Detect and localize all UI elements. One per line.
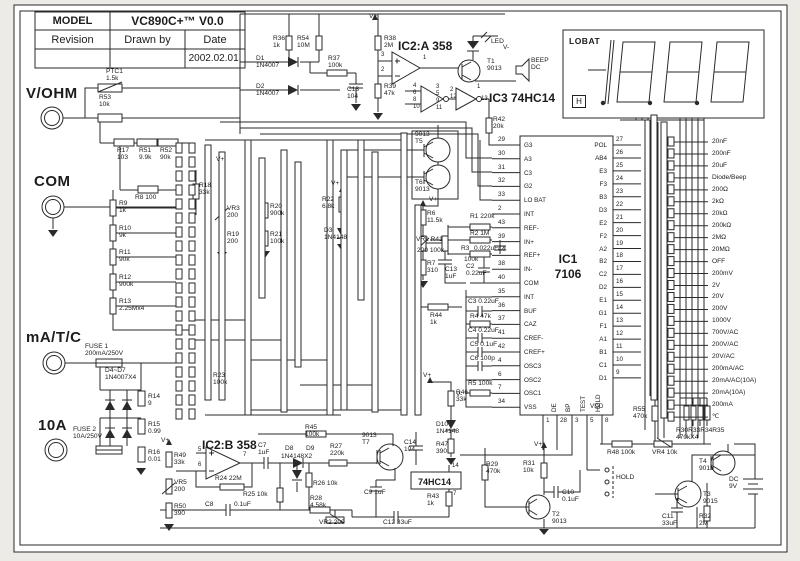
label-r13-14: R13 2.25Mx4 bbox=[119, 298, 144, 312]
ic1-pin-num-41: 41 bbox=[498, 329, 505, 336]
ic1-pin-in-l9: IN- bbox=[524, 266, 532, 273]
ic1-pin-num-24: 24 bbox=[616, 175, 623, 182]
label-r36-35: R36 1k bbox=[273, 35, 285, 49]
label-2-46: 2 bbox=[381, 67, 384, 74]
label-1-47: 1 bbox=[423, 55, 426, 62]
range-2v-12: 2V bbox=[712, 282, 720, 289]
label-r25-99: R25 10k bbox=[243, 491, 268, 498]
label-200-64: 200 100k bbox=[417, 247, 444, 254]
switch-wafer-bar bbox=[651, 115, 657, 400]
switch-wafer-bar bbox=[401, 133, 407, 415]
label-r28-100: R28 4.58k bbox=[310, 495, 326, 509]
label-r10-11: R10 9k bbox=[119, 225, 131, 239]
label-t6-60: T6 9013 bbox=[415, 179, 430, 193]
label-c8-101: C8 bbox=[205, 501, 213, 508]
range-pad bbox=[668, 388, 674, 397]
ic1-pin-osc2-l17: OSC2 bbox=[524, 377, 541, 384]
range-200vac-17: 200V/AC bbox=[712, 341, 738, 348]
range-pad bbox=[668, 149, 674, 158]
ic1-pin-d3-r5: D3 bbox=[567, 207, 607, 214]
ic1-pin-num-11: 11 bbox=[616, 343, 623, 350]
switch-pad bbox=[189, 143, 195, 153]
ic1-pin-num-2: 2 bbox=[498, 205, 502, 212]
label-100k-71: 100k bbox=[464, 256, 478, 263]
ic1-pin-d1-r18: D1 bbox=[567, 375, 607, 382]
label-r31-112: R31 10k bbox=[523, 460, 535, 474]
label-dc-122: DC 9V bbox=[729, 476, 739, 490]
label-74hc14-106: 74HC14 bbox=[418, 477, 451, 487]
ic1-pin-num-40: 40 bbox=[498, 274, 505, 281]
switch-pad bbox=[176, 353, 182, 363]
label-com-1: COM bbox=[34, 174, 71, 189]
range-pad bbox=[668, 400, 674, 409]
label-r1-67: R1 220k bbox=[470, 213, 495, 220]
switch-pad bbox=[176, 395, 182, 405]
label-r54-36: R54 10M bbox=[297, 35, 310, 49]
label-vr5-23: VR5 200 bbox=[174, 479, 187, 493]
switch-pad bbox=[176, 311, 182, 321]
model-label: MODEL bbox=[35, 12, 110, 30]
label-c13-66: C13 1uF bbox=[445, 266, 457, 280]
label-r2-68: R2 1M bbox=[470, 230, 489, 237]
ic1-pin-vdd-b4: VDD bbox=[590, 403, 603, 410]
switch-pad bbox=[189, 339, 195, 349]
ic1-pin-num-21: 21 bbox=[616, 214, 623, 221]
switch-pad bbox=[176, 409, 182, 419]
label-beep-51: BEEP DC bbox=[531, 57, 549, 71]
ic1-pin-f2-r7: F2 bbox=[567, 233, 607, 240]
switch-pad bbox=[176, 325, 182, 335]
label-vr2-103: VR2 200 bbox=[319, 519, 345, 526]
switch-pad bbox=[189, 157, 195, 167]
model-value: VC890C+™ V0.0 bbox=[110, 12, 245, 30]
ic1-pin-num-20: 20 bbox=[616, 227, 623, 234]
label-ic3-52: IC3 74HC14 bbox=[489, 92, 555, 104]
label-d2-38: D2 1N4007 bbox=[256, 83, 279, 97]
ic1-pin-num-32: 32 bbox=[498, 177, 505, 184]
ic1-pin-a3-l1: A3 bbox=[524, 156, 532, 163]
label-2-55: 2 12 bbox=[450, 87, 457, 101]
range-200nf-1: 200nF bbox=[712, 150, 731, 157]
ic1-pin-num-15: 15 bbox=[616, 291, 623, 298]
label-d4d7-16: D4~D7 1N4007X4 bbox=[105, 367, 136, 381]
label-v+-21: V+ bbox=[161, 437, 169, 444]
ic1-pin-num-31: 31 bbox=[498, 164, 505, 171]
label-r42-58: R42 20k bbox=[493, 116, 505, 130]
range-pad bbox=[668, 197, 674, 206]
label-r52-8: R52 90k bbox=[160, 147, 172, 161]
ic1-pin-b1-r16: B1 bbox=[567, 349, 607, 356]
label-r12-13: R12 900k bbox=[119, 274, 133, 288]
label-c14-85: C14 104 bbox=[404, 439, 416, 453]
range-20vac-18: 20V/AC bbox=[712, 353, 735, 360]
label-c10-113: C10 0.1uF bbox=[562, 489, 579, 503]
switch-pad bbox=[176, 381, 182, 391]
label-r50-24: R50 390 bbox=[174, 503, 186, 517]
range-pad bbox=[668, 352, 674, 361]
ic1-pin-num-12: 12 bbox=[616, 330, 623, 337]
ic1-pin-num-5: 5 bbox=[590, 417, 594, 424]
ic1-pin-e3-r2: E3 bbox=[567, 168, 607, 175]
hold-indicator: H bbox=[572, 95, 586, 108]
switch-pad bbox=[189, 325, 195, 335]
switch-pad bbox=[176, 185, 182, 195]
label-r19-28: R19 200 bbox=[227, 231, 239, 245]
date-label: Date bbox=[185, 30, 245, 49]
label-r48-117: R48 100k bbox=[607, 449, 635, 456]
switch-pad bbox=[189, 297, 195, 307]
ic1-pin-num-34: 34 bbox=[498, 398, 505, 405]
range-20nf-0: 20nF bbox=[712, 138, 727, 145]
label-hold-119: HOLD bbox=[616, 474, 634, 481]
switch-pad bbox=[176, 157, 182, 167]
label-01uf-102: 0.1uF bbox=[234, 501, 251, 508]
switch-pad bbox=[189, 409, 195, 419]
label-r17-6: R17 103 bbox=[117, 147, 129, 161]
ic1-pin-num-17: 17 bbox=[616, 265, 623, 272]
range-pad bbox=[668, 316, 674, 325]
range-pad bbox=[668, 376, 674, 385]
switch-pad bbox=[176, 269, 182, 279]
ic1-pin-num-7: 7 bbox=[498, 384, 502, 391]
label-6-90: 6 bbox=[198, 462, 201, 469]
label-t3-121: T3 9015 bbox=[703, 491, 718, 505]
switch-pad bbox=[189, 353, 195, 363]
ic1-pin-num-36: 36 bbox=[498, 302, 505, 309]
range-2m-8: 2MΩ bbox=[712, 234, 726, 241]
label-v-49: V- bbox=[503, 44, 509, 51]
multimeter-schematic-page: MODEL VC890C+™ V0.0 Revision Drawn by Da… bbox=[0, 0, 800, 561]
label-r44-80: R44 1k bbox=[430, 312, 442, 326]
switch-pad bbox=[189, 367, 195, 377]
ic1-pin-ref+-l8: REF+ bbox=[524, 252, 540, 259]
label-fuse-20: FUSE 2 10A/250V bbox=[73, 426, 102, 440]
range-pad bbox=[668, 221, 674, 230]
label-r22-32: R22 6.8k bbox=[322, 196, 334, 210]
ic1-pin-num-23: 23 bbox=[616, 188, 623, 195]
label-vr1-63: VR1 R41 bbox=[416, 236, 443, 243]
label-d9-95: D9 bbox=[306, 445, 314, 452]
switch-wafer-bar bbox=[219, 152, 225, 400]
label-r7-65: R7 310 bbox=[427, 260, 438, 274]
ic1-pin-num-1: 1 bbox=[546, 417, 550, 424]
label-c11-123: C11 33uF bbox=[662, 513, 677, 527]
label-c5-76: C5 0.1uF bbox=[470, 341, 497, 348]
ic1-pin-num-27: 27 bbox=[616, 136, 623, 143]
ic1-pin-g1-r13: G1 bbox=[567, 310, 607, 317]
label-v+-81: V+ bbox=[423, 372, 431, 379]
ic1-pin-num-33: 33 bbox=[498, 191, 505, 198]
range-20uf-2: 20uF bbox=[712, 162, 727, 169]
ic1-pin-de-b0: DE bbox=[551, 403, 558, 412]
switch-pad bbox=[176, 227, 182, 237]
label-ic2b-88: IC2:B 358 bbox=[202, 439, 257, 451]
ic1-pin-ab4-r1: AB4 bbox=[567, 155, 607, 162]
label-10a-3: 10A bbox=[38, 418, 67, 433]
label-v+-41: V+ bbox=[369, 13, 377, 20]
label-r9-10: R9 1k bbox=[119, 200, 127, 214]
label-7-108: 7 bbox=[453, 491, 456, 498]
label-r29-111: R29 470k bbox=[486, 461, 500, 475]
label-led-48: LED bbox=[491, 38, 504, 45]
range-20v-13: 20V bbox=[712, 293, 724, 300]
switch-pad bbox=[189, 311, 195, 321]
label-r3-69: R3 bbox=[461, 245, 469, 252]
label-r51-7: R51 9.9k bbox=[139, 147, 151, 161]
range-pad bbox=[668, 304, 674, 313]
switch-pad bbox=[189, 241, 195, 251]
label-r47-84: R47 390 bbox=[436, 441, 448, 455]
ic1-pin-e2-r6: E2 bbox=[567, 220, 607, 227]
ic1-pin-num-22: 22 bbox=[616, 201, 623, 208]
label-1-56: 1 bbox=[477, 84, 480, 91]
label-r23-34: R23 100k bbox=[213, 372, 227, 386]
switch-pad bbox=[189, 381, 195, 391]
label-r55-115: R55 470k bbox=[633, 406, 647, 420]
ic1-pin-num-25: 25 bbox=[616, 162, 623, 169]
switch-pad bbox=[189, 283, 195, 293]
ic1-pin-ref-l6: REF- bbox=[524, 225, 539, 232]
label-t2-114: T2 9013 bbox=[552, 511, 567, 525]
label-v+-25: V+ bbox=[216, 156, 224, 163]
label-c3-73: C3 0.22uF bbox=[468, 298, 499, 305]
label-ic2a-44: IC2:A 358 bbox=[398, 40, 452, 52]
ic1-pin-f1-r14: F1 bbox=[567, 323, 607, 330]
label-vr3-27: VR3 200 bbox=[227, 205, 240, 219]
revision-label: Revision bbox=[35, 30, 110, 49]
range-pad bbox=[668, 245, 674, 254]
label-3-54: 3 5 9 11 bbox=[436, 84, 442, 112]
label-d1-37: D1 1N4007 bbox=[256, 55, 279, 69]
ic1-pin-num-38: 38 bbox=[498, 260, 505, 267]
ic1-pin-caz-l13: CAZ bbox=[524, 321, 537, 328]
switch-pad bbox=[176, 339, 182, 349]
label-r30r33r34r35-116: R30R33R34R35 470kX4 bbox=[676, 427, 724, 441]
range-pad bbox=[668, 281, 674, 290]
label-c4-75: C4 0.22uF bbox=[468, 327, 499, 334]
label-c9-104: C9 1uF bbox=[364, 489, 386, 496]
label-9013-59: 9013 T5 bbox=[415, 131, 430, 145]
range-200v-14: 200V bbox=[712, 305, 727, 312]
switch-pad bbox=[189, 255, 195, 265]
range-200k-7: 200kΩ bbox=[712, 222, 731, 229]
ic1-pin-num-13: 13 bbox=[616, 317, 623, 324]
ic1-pin-bp-b1: BP bbox=[565, 404, 572, 412]
label-r26-98: R26 10k bbox=[313, 480, 338, 487]
ic1-pin-num-18: 18 bbox=[616, 252, 623, 259]
label-r16-19: R16 0.01 bbox=[148, 449, 161, 463]
ic1-pin-e1-r12: E1 bbox=[567, 297, 607, 304]
range-200maac-19: 200mA/AC bbox=[712, 365, 744, 372]
range-pad bbox=[668, 292, 674, 301]
ic1-pin-c2-r10: C2 bbox=[567, 271, 607, 278]
ic1-pin-num-43: 43 bbox=[498, 219, 505, 226]
ic1-pin-f3-r3: F3 bbox=[567, 181, 607, 188]
label-matc-2: mA/T/C bbox=[26, 330, 82, 345]
label-4-53: 4 6 8 10 bbox=[413, 83, 420, 111]
ic1-pin-num-9: 9 bbox=[616, 369, 620, 376]
label-c6-77: C6 100p bbox=[470, 355, 495, 362]
range-pad bbox=[668, 173, 674, 182]
switch-pad bbox=[176, 283, 182, 293]
switch-pad bbox=[176, 255, 182, 265]
range-pad bbox=[668, 364, 674, 373]
range-pad bbox=[668, 233, 674, 242]
label-r20-29: R20 900k bbox=[270, 203, 284, 217]
ic1-pin-num-30: 30 bbox=[498, 150, 505, 157]
ic1-pin-vss-l19: VSS bbox=[524, 404, 537, 411]
range-pad bbox=[668, 269, 674, 278]
range-2k-5: 2kΩ bbox=[712, 198, 724, 205]
ic1-pin-num-19: 19 bbox=[616, 240, 623, 247]
range-20k-6: 20kΩ bbox=[712, 210, 728, 217]
label-t1-50: T1 9013 bbox=[487, 58, 502, 72]
drawn-by-label: Drawn by bbox=[110, 30, 185, 49]
label-7-91: 7 bbox=[243, 452, 246, 459]
range-200ma-22: 200mA bbox=[712, 401, 733, 408]
label-r5-78: R5 100k bbox=[468, 380, 493, 387]
switch-pad bbox=[189, 199, 195, 209]
label-r43-109: R43 1k bbox=[427, 493, 439, 507]
switch-wafer-bar bbox=[358, 140, 364, 300]
ic1-pin-c1-r17: C1 bbox=[567, 362, 607, 369]
label-fuse-15: FUSE 1 200mA/250V bbox=[85, 343, 123, 357]
ic1-pin-c3-l2: C3 bbox=[524, 170, 532, 177]
range-20maac10a-20: 20mA/AC(10A) bbox=[712, 377, 756, 384]
label-r6-62: R6 11.5k bbox=[427, 210, 443, 224]
label-r39-43: R39 47k bbox=[384, 83, 396, 97]
ic1-pin-pol-r0: POL bbox=[567, 142, 607, 149]
ic1-pin-num-3: 3 bbox=[575, 417, 579, 424]
date-value: 2002.02.01. bbox=[185, 49, 245, 68]
lobat-indicator: LOBAT bbox=[569, 36, 600, 46]
switch-wafer-bar bbox=[281, 150, 287, 412]
ic1-pin-a1-r15: A1 bbox=[567, 336, 607, 343]
switch-pad bbox=[176, 171, 182, 181]
label-r46-82: R46 33k bbox=[456, 389, 468, 403]
label-14-107: 14 bbox=[452, 463, 459, 470]
range-pad bbox=[668, 185, 674, 194]
switch-pad bbox=[176, 199, 182, 209]
range-pad bbox=[668, 209, 674, 218]
ic1-pin-int-l11: INT bbox=[524, 294, 534, 301]
label-d10-83: D10 1N4148 bbox=[436, 421, 459, 435]
switch-pad bbox=[176, 241, 182, 251]
label-t4-120: T4 9015 bbox=[699, 458, 714, 472]
ic1-pin-g2-l3: G2 bbox=[524, 183, 532, 190]
label-c2-72: C2 0.22uF bbox=[466, 263, 487, 277]
ic1-pin-test-b2: TEST bbox=[580, 396, 587, 412]
ic1-pin-num-4: 4 bbox=[498, 357, 502, 364]
label-v+-31: V+ bbox=[331, 180, 339, 187]
label-r15-18: R15 0.99 bbox=[148, 421, 161, 435]
ic1-pin-num-35: 35 bbox=[498, 288, 505, 295]
range-pad bbox=[668, 161, 674, 170]
range-x-23: ℃ bbox=[712, 413, 719, 420]
switch-wafer-bar bbox=[372, 152, 378, 412]
label-1n4148x2-96: 1N4148X2 bbox=[281, 453, 312, 460]
ic1-pin-b2-r9: B2 bbox=[567, 258, 607, 265]
switch-wafer-bar bbox=[245, 140, 251, 415]
label-r32-124: R32 2M bbox=[699, 513, 711, 527]
label-3-45: 3 bbox=[381, 52, 384, 59]
ic1-pin-num-14: 14 bbox=[616, 304, 623, 311]
label-r11-12: R11 90k bbox=[119, 249, 131, 263]
switch-wafer-bar bbox=[259, 158, 265, 298]
label-9013-87: 9013 T7 bbox=[362, 432, 377, 446]
ic1-pin-num-37: 37 bbox=[498, 315, 505, 322]
switch-pad bbox=[176, 297, 182, 307]
label-r14-17: R14 9 bbox=[148, 393, 160, 407]
label-r53-5: R53 10k bbox=[99, 94, 111, 108]
label-c12-105: C12 33uF bbox=[383, 519, 412, 526]
ic1-pin-num-42: 42 bbox=[498, 343, 505, 350]
label-5-89: 5 bbox=[198, 447, 201, 454]
ic1-pin-osc1-l18: OSC1 bbox=[524, 390, 541, 397]
label-r37-39: R37 100k bbox=[328, 55, 342, 69]
ic1-pin-num-44: 44 bbox=[498, 246, 505, 253]
switch-pad bbox=[176, 143, 182, 153]
ic1-pin-lobat-l4: LO BAT bbox=[524, 197, 546, 204]
range-pad bbox=[668, 412, 674, 421]
ic1-pin-num-8: 8 bbox=[605, 417, 609, 424]
range-diodebeep-3: Diode/Beep bbox=[712, 174, 746, 181]
ic1-pin-int-l5: INT bbox=[524, 211, 534, 218]
switch-pad bbox=[189, 185, 195, 195]
switch-wafer-bar bbox=[295, 162, 301, 367]
label-d3-33: D3 1N4148 bbox=[324, 227, 347, 241]
range-200mv-11: 200mV bbox=[712, 270, 733, 277]
ic1-pin-in+-l7: IN+ bbox=[524, 239, 534, 246]
switch-wafer-bar bbox=[341, 150, 347, 410]
range-700vac-16: 700V/AC bbox=[712, 329, 738, 336]
label-c13-40: C13 104 bbox=[347, 86, 359, 100]
range-off-10: OFF bbox=[712, 258, 725, 265]
ic1-pin-num-6: 6 bbox=[498, 371, 502, 378]
range-200-4: 200Ω bbox=[712, 186, 728, 193]
ic1-pin-osc3-l16: OSC3 bbox=[524, 363, 541, 370]
label-r24-92: R24 22M bbox=[215, 475, 242, 482]
ic1-pin-cref-l14: CREF- bbox=[524, 335, 543, 342]
ic1-pin-b3-r4: B3 bbox=[567, 194, 607, 201]
label-v+-61: V+ bbox=[429, 196, 437, 203]
switch-pad bbox=[176, 213, 182, 223]
label-r21-30: R21 100k bbox=[270, 231, 284, 245]
switch-wafer-bar bbox=[661, 122, 667, 418]
label-r45-86: R45 100k bbox=[305, 424, 319, 438]
ic1-pin-num-16: 16 bbox=[616, 278, 623, 285]
label-vr4-118: VR4 10k bbox=[652, 449, 677, 456]
label-c7-93: C7 1uF bbox=[258, 442, 269, 456]
range-20m-9: 20MΩ bbox=[712, 246, 730, 253]
range-pad bbox=[668, 257, 674, 266]
label-r8-9: R8 100 bbox=[135, 194, 156, 201]
ic1-pin-a2-r8: A2 bbox=[567, 246, 607, 253]
range-1000v-15: 1000V bbox=[712, 317, 731, 324]
ic1-pin-num-39: 39 bbox=[498, 233, 505, 240]
range-pad bbox=[668, 137, 674, 146]
label-r27-97: R27 220k bbox=[330, 443, 344, 457]
switch-pad bbox=[189, 269, 195, 279]
label-r18-26: R18 33k bbox=[199, 182, 211, 196]
label-vohm-0: V/OHM bbox=[26, 86, 78, 101]
ic1-pin-cref+-l15: CREF+ bbox=[524, 349, 545, 356]
switch-pad bbox=[189, 213, 195, 223]
ic1-pin-num-29: 29 bbox=[498, 136, 505, 143]
label-ptc1-4: PTC1 1.5k bbox=[106, 68, 123, 82]
switch-pad bbox=[189, 171, 195, 181]
label-d8-94: D8 bbox=[285, 445, 293, 452]
